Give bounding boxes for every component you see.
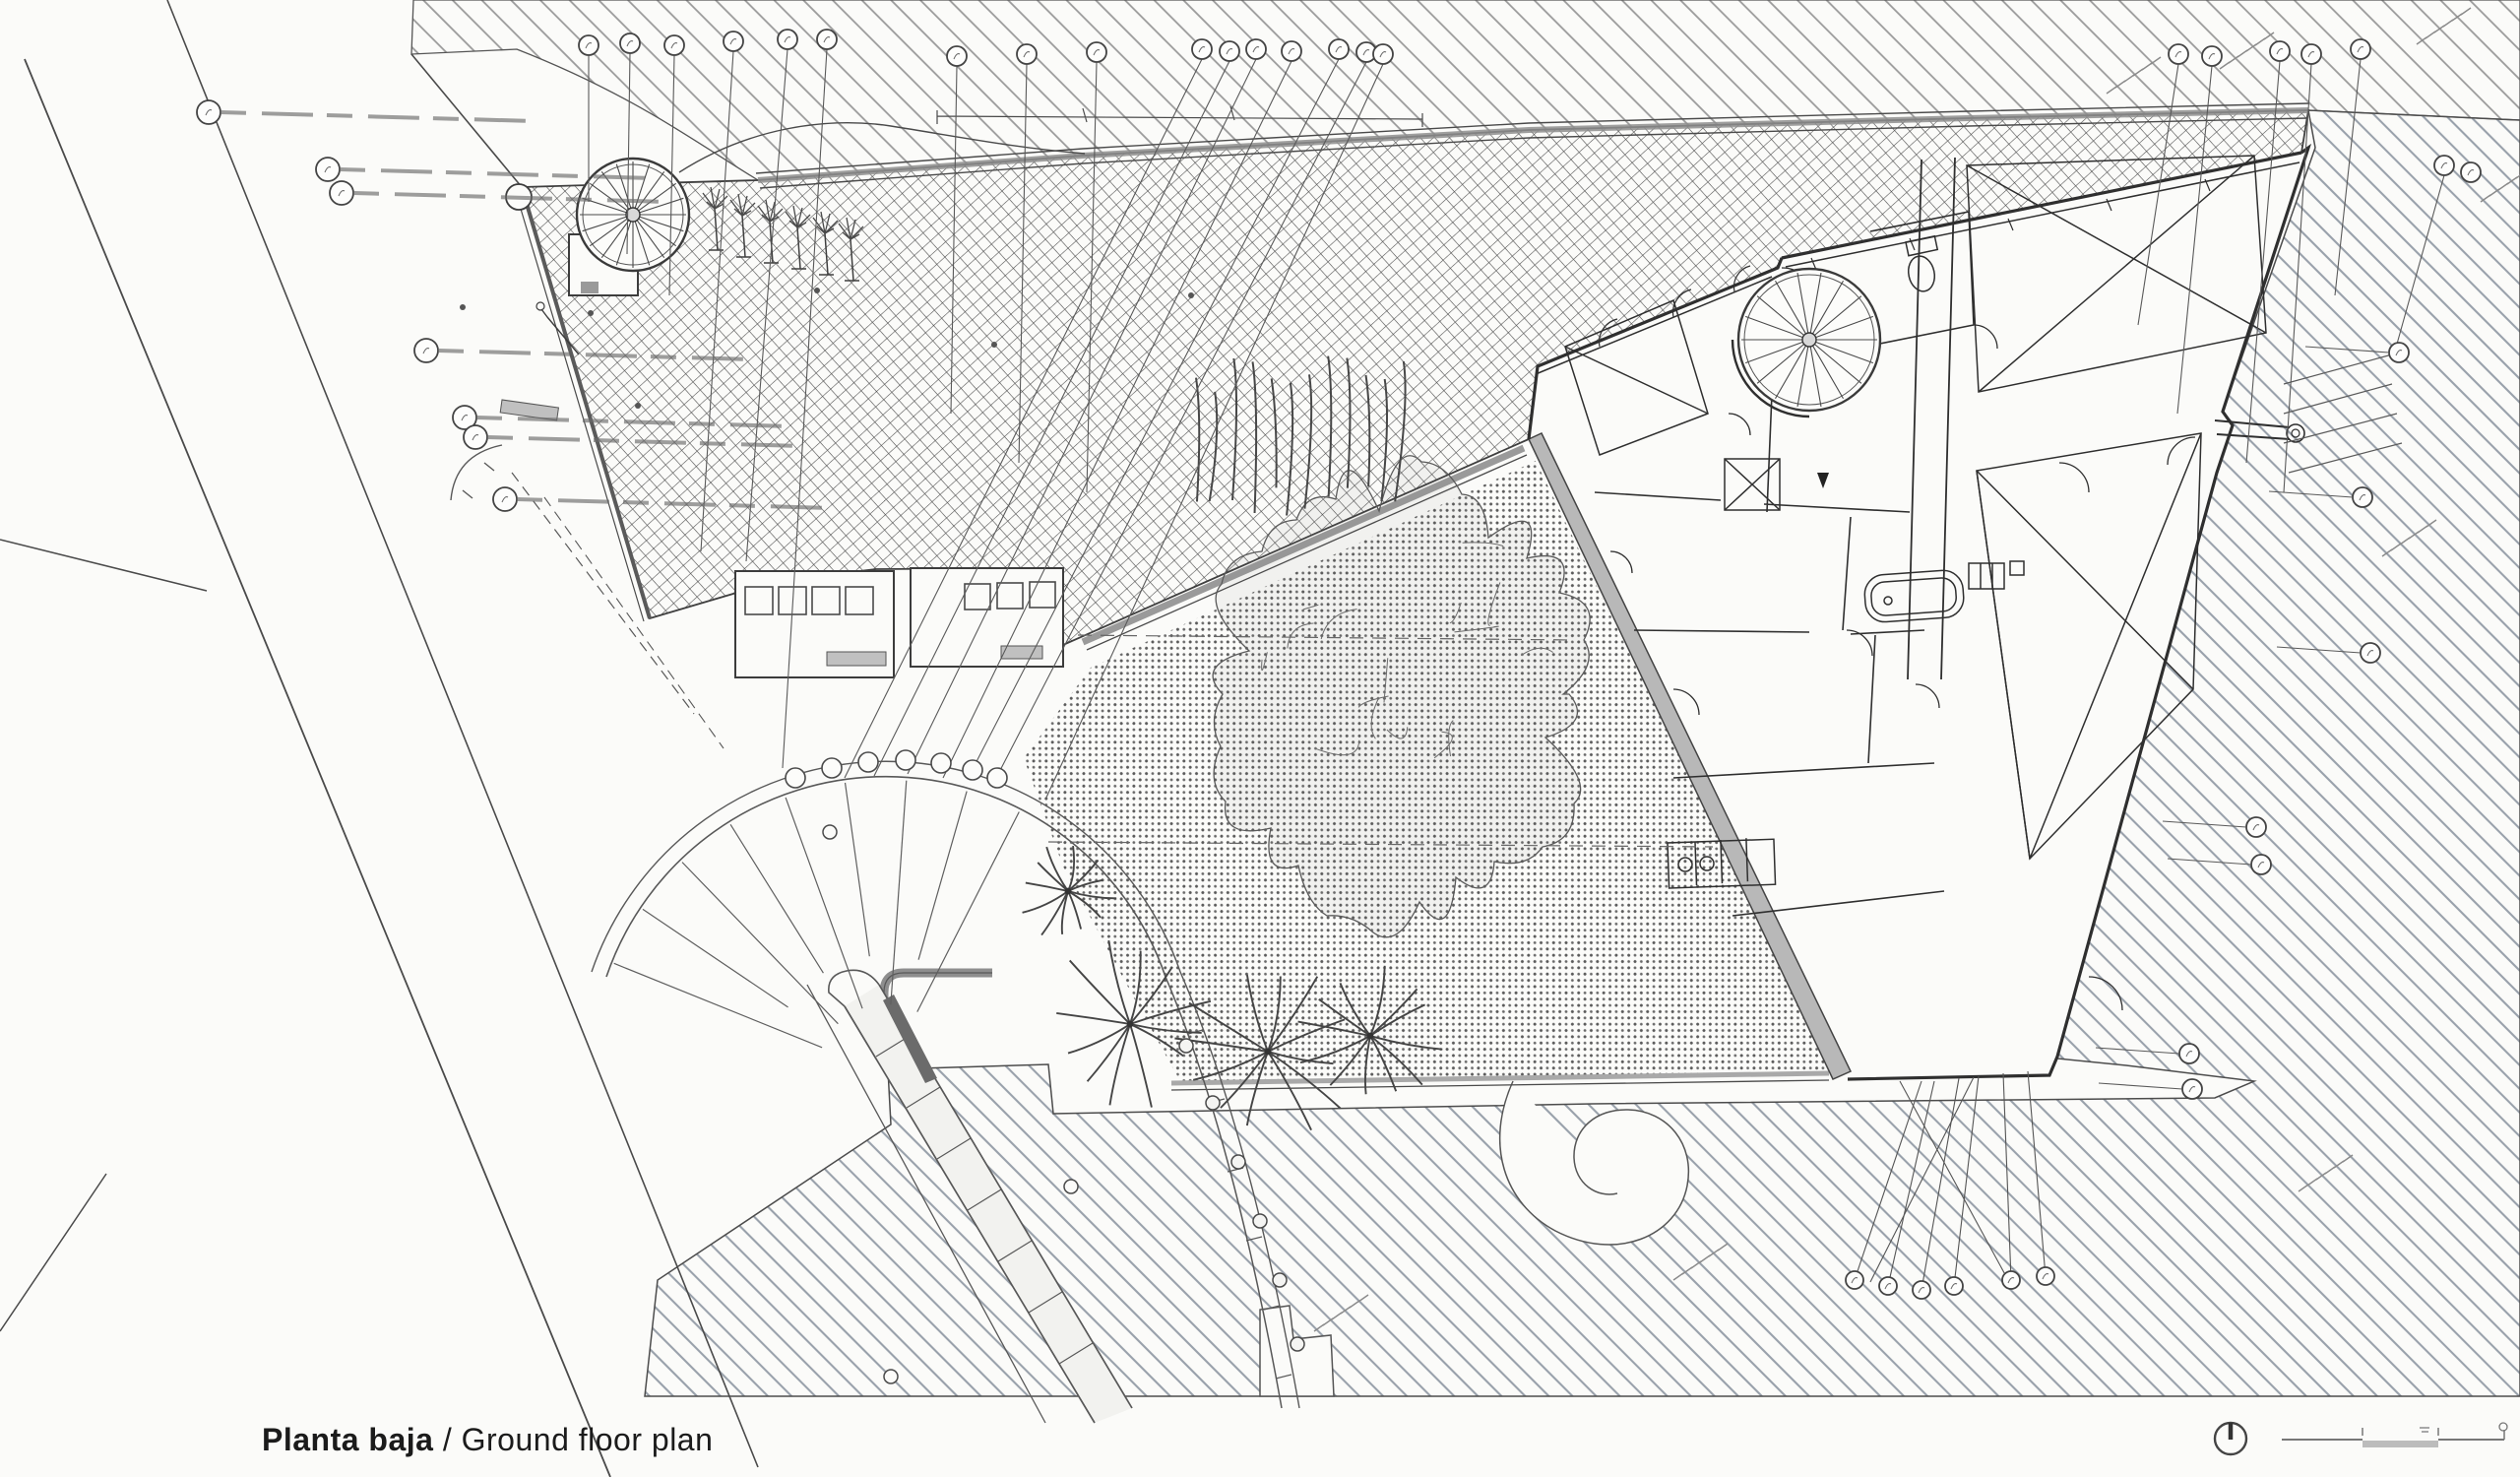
grid-bubble (330, 181, 353, 205)
plan-sheet: Planta baja / Ground floor plan (0, 0, 2520, 1477)
grid-bubble (1192, 39, 1212, 59)
grid-bubble (2002, 1271, 2020, 1289)
paving-dot (814, 288, 820, 293)
plaza-radial-line (730, 824, 823, 973)
scale-bar (2282, 1423, 2507, 1447)
grid-bubble (2182, 1079, 2202, 1099)
annex-pavilions (735, 568, 1063, 677)
bench (1001, 646, 1042, 659)
caption-title-spanish: Planta baja (262, 1422, 433, 1457)
bollard (1253, 1214, 1267, 1228)
paving-dot (460, 304, 466, 310)
plaza-radial-line (614, 963, 822, 1047)
caption-title-english: Ground floor plan (462, 1422, 714, 1457)
grid-bubble (2461, 162, 2481, 182)
grid-bubble (2251, 855, 2271, 874)
dashed-leader (220, 112, 534, 121)
arc-marker-circle (931, 753, 951, 773)
grid-bubble (316, 158, 340, 181)
arc-marker-circle (822, 758, 842, 778)
paving-dot (991, 342, 997, 348)
grid-bubble (2246, 817, 2266, 837)
grid-bubble (1282, 41, 1301, 61)
grid-bubble (493, 487, 517, 511)
arc-marker-circle (896, 750, 915, 770)
grid-bubble (1329, 39, 1349, 59)
grid-bubble (664, 35, 684, 55)
bollard (1231, 1155, 1245, 1169)
arc-marker-circle (963, 760, 982, 780)
arc-marker-circle (786, 768, 805, 788)
grid-bubble (1846, 1271, 1863, 1289)
grid-bubble (2301, 44, 2321, 64)
bollard (1273, 1273, 1287, 1287)
grid-bubble (197, 100, 220, 124)
plaza-radial-line (846, 783, 870, 956)
paving-dot (588, 310, 594, 316)
caption-separator: / (433, 1422, 461, 1457)
building-spiral-stair (1738, 269, 1880, 411)
bollard (1179, 1039, 1193, 1053)
plaza-marker (1064, 1180, 1078, 1193)
section-marker (1817, 473, 1829, 488)
grid-bubble (414, 339, 438, 362)
sink-counter (1969, 563, 2004, 589)
grid-bubble (2389, 343, 2409, 362)
arc-marker-circle (987, 768, 1007, 788)
grid-bubble (1879, 1277, 1897, 1295)
grid-bubble (1220, 41, 1239, 61)
bench (827, 652, 886, 666)
plaza-radial-line (682, 863, 838, 1024)
grid-bubble (1087, 42, 1106, 62)
grid-bubble (464, 425, 487, 449)
grid-bubble (2361, 643, 2380, 663)
corridor-walls (1908, 158, 1955, 679)
bollard (1206, 1096, 1220, 1110)
paving-dot (1188, 292, 1194, 298)
drawing-caption: Planta baja / Ground floor plan (262, 1422, 713, 1458)
grid-bubble (2353, 487, 2372, 507)
grid-bubble (579, 35, 598, 55)
leader-line (2099, 1083, 2182, 1089)
grid-bubble (947, 46, 967, 66)
grid-bubble (2169, 44, 2188, 64)
grid-bubble (2434, 156, 2454, 175)
grid-bubble (620, 33, 640, 53)
small-upper-arc (451, 445, 502, 500)
bollard (1291, 1337, 1304, 1351)
title-block (2215, 1423, 2507, 1454)
paving-dot (635, 403, 641, 409)
grid-bubble (1017, 44, 1037, 64)
grid-bubble (2351, 39, 2370, 59)
grid-bubble (2270, 41, 2290, 61)
plaza-marker (884, 1370, 898, 1383)
arc-marker-circle (858, 752, 878, 772)
grid-bubble (2202, 46, 2222, 66)
floor-plan-drawing (0, 0, 2520, 1477)
grid-bubble (1373, 44, 1393, 64)
north-indicator-icon (2215, 1423, 2246, 1454)
plaza-radial-line (918, 792, 967, 960)
plaza-marker (823, 825, 837, 839)
grid-bubble (1945, 1277, 1963, 1295)
grid-bubble (817, 30, 837, 49)
plaza-radial-line (643, 909, 788, 1007)
grid-bubble (2037, 1267, 2054, 1285)
grid-bubble (724, 32, 743, 51)
bathtub (1863, 569, 1965, 623)
grid-bubble (2179, 1044, 2199, 1063)
grid-bubble (1913, 1281, 1930, 1299)
grid-bubble (1246, 39, 1266, 59)
grid-bubble (778, 30, 797, 49)
